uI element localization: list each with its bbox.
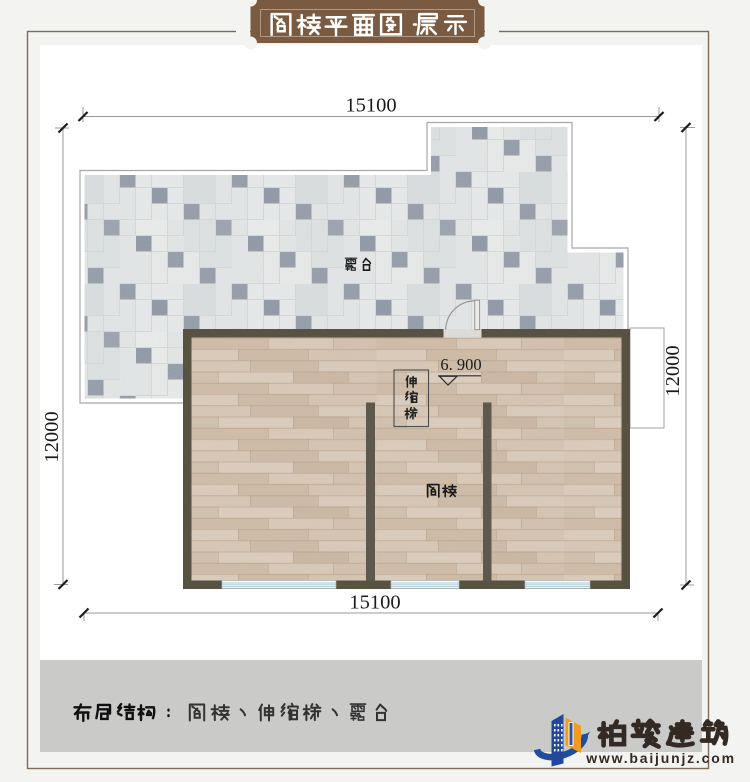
svg-text:12000: 12000 <box>41 411 63 462</box>
svg-text:www.baijunjz.com: www.baijunjz.com <box>585 750 736 766</box>
svg-text:12000: 12000 <box>662 345 684 396</box>
svg-text:15100: 15100 <box>349 592 400 614</box>
svg-text:6. 900: 6. 900 <box>440 355 481 374</box>
svg-text:15100: 15100 <box>345 95 396 117</box>
